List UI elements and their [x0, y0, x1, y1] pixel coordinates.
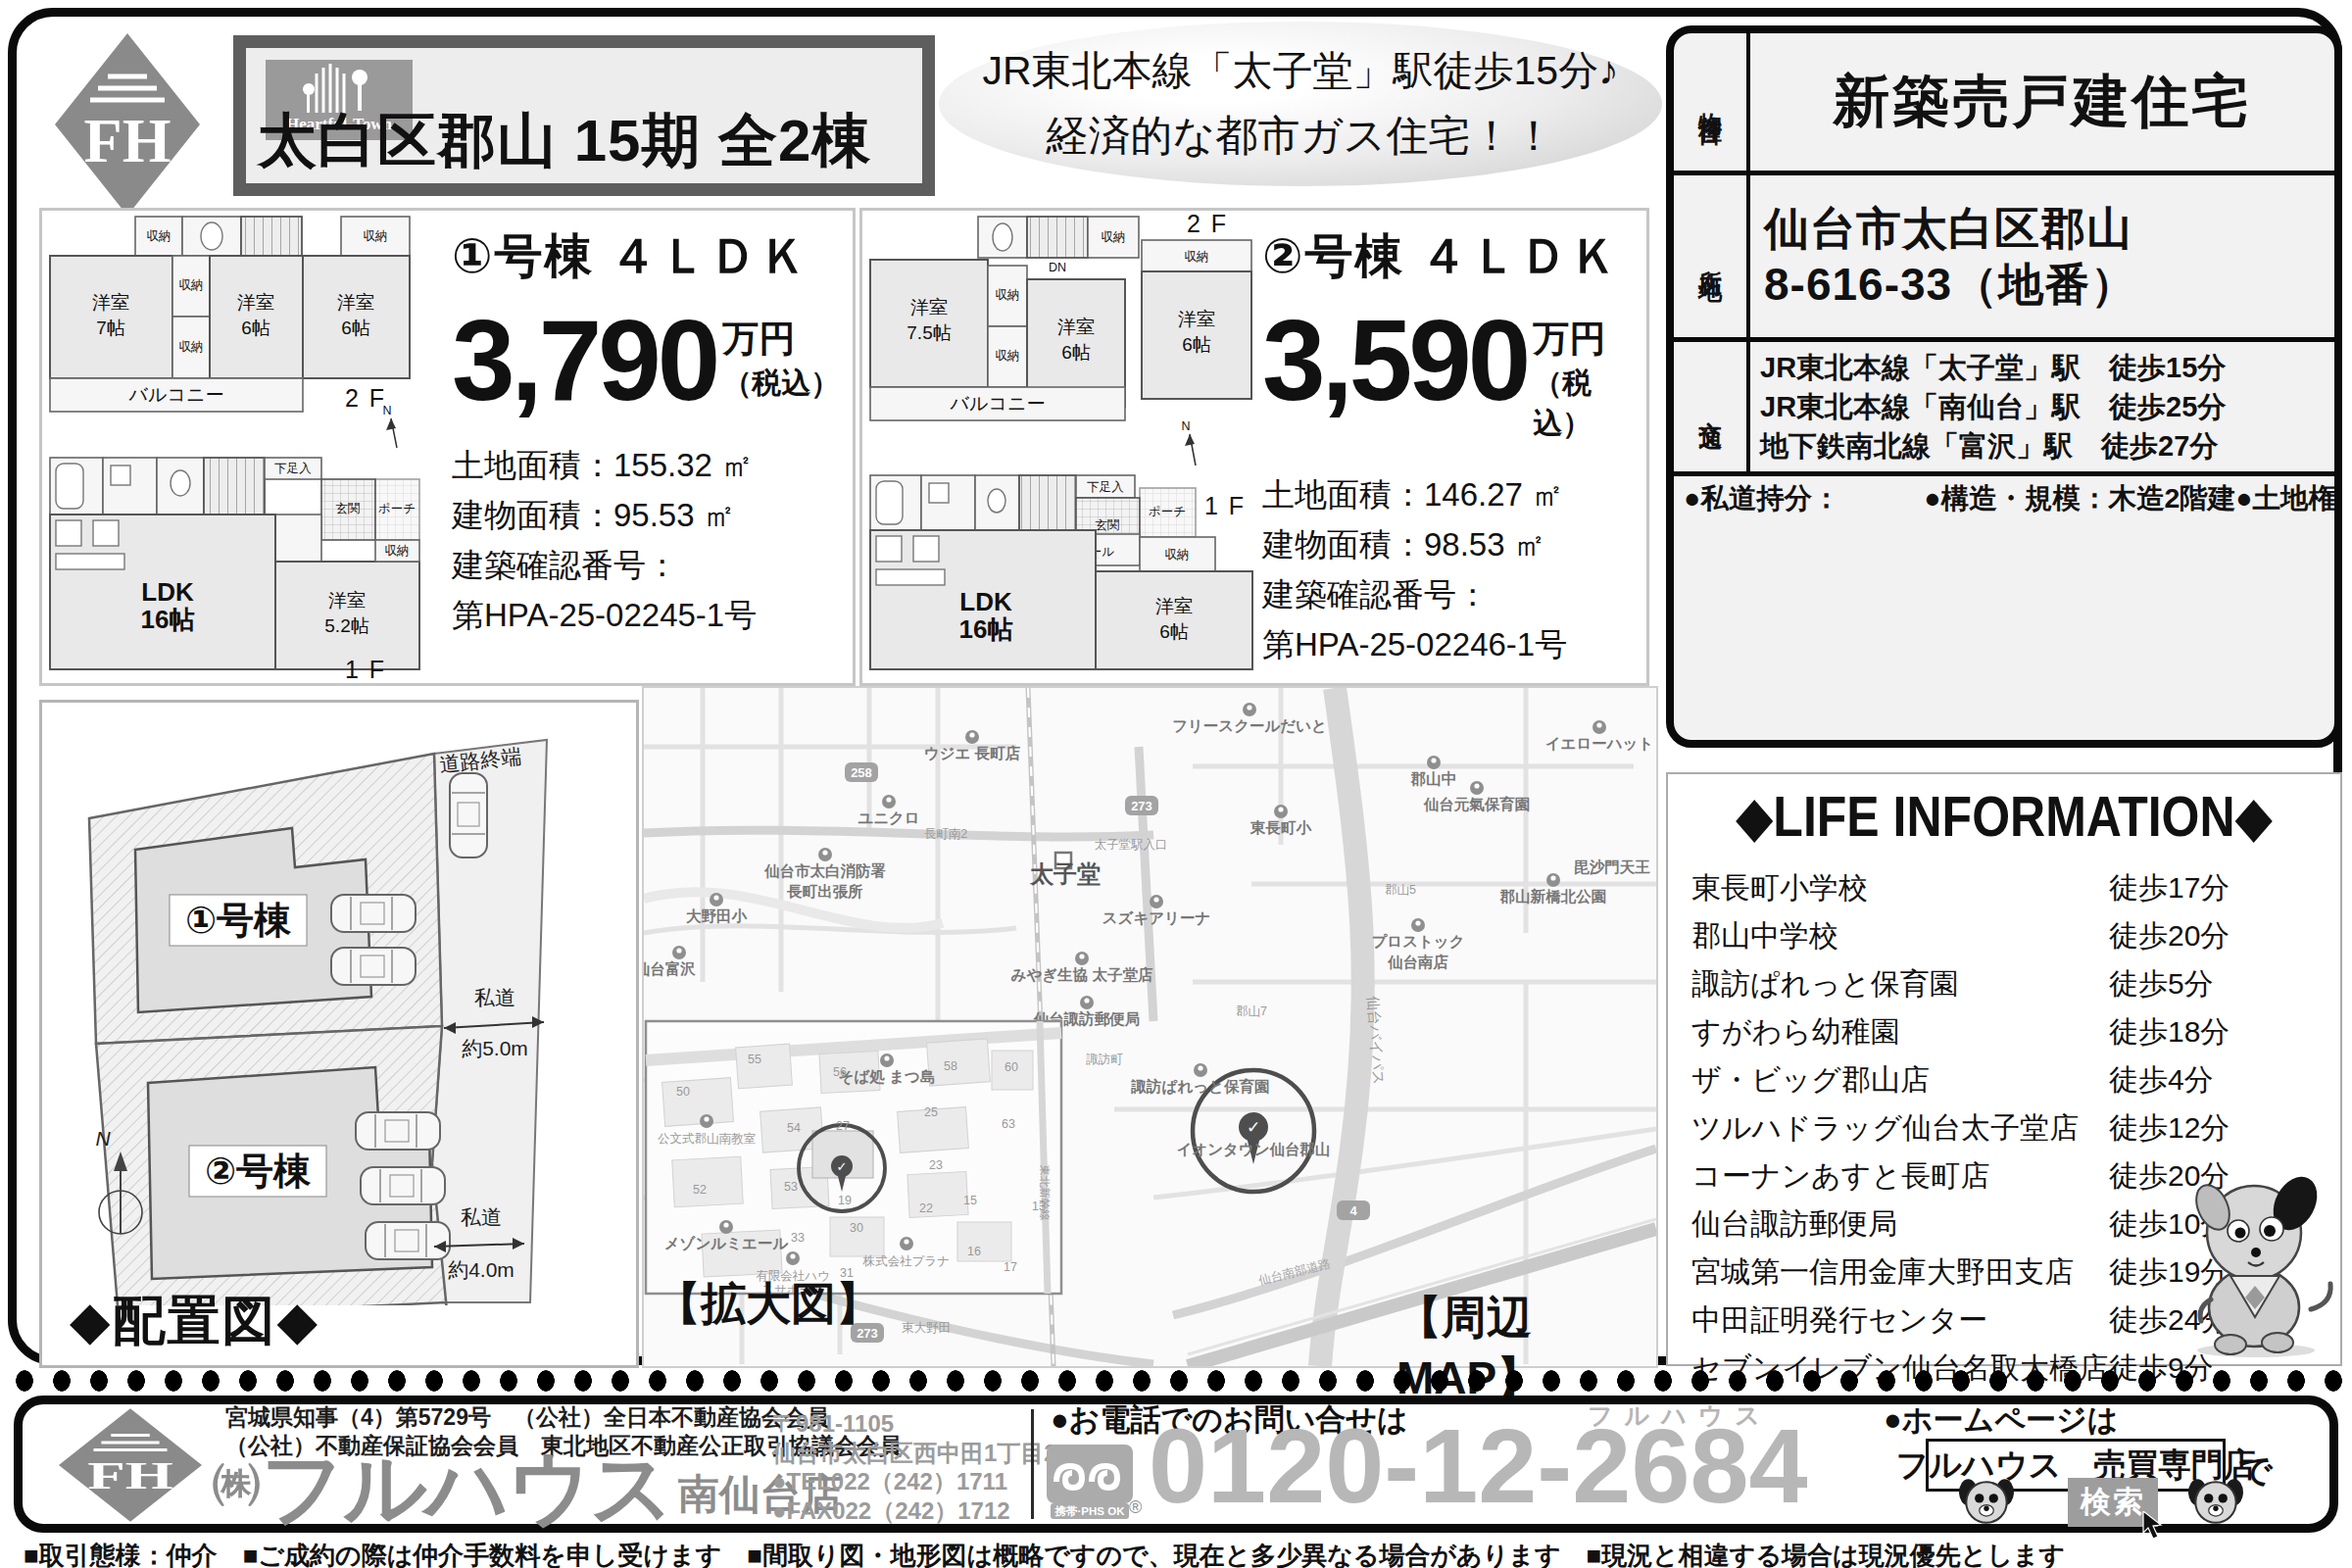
unit1-permit-label: 建築確認番号： [452, 540, 846, 590]
unit2-price-number: 3,590 [1262, 307, 1527, 415]
svg-text:1 F: 1 F [345, 656, 386, 681]
svg-text:収納: 収納 [179, 340, 204, 354]
check-icon: ✓ [837, 1159, 848, 1174]
lot-number: 22 [919, 1201, 933, 1215]
svg-text:収納: 収納 [364, 229, 388, 243]
lot-number: 17 [1004, 1260, 1017, 1274]
map-label: メゾンルミエール [664, 1235, 789, 1251]
map-label: みやぎ生協 太子堂店 [1011, 966, 1153, 984]
transport-lines: JR東北本線「太子堂」駅 徒歩15分JR東北本線「南仙台」駅 徒歩25分地下鉄南… [1750, 342, 2334, 471]
unit1-name: ①号棟 ４ＬＤＫ [452, 224, 846, 289]
life-walk-time: 徒歩5分 [2109, 964, 2214, 1004]
address-label: 所在地 [1674, 175, 1750, 337]
life-place: 宮城第一信用金庫大野田支店 [1691, 1252, 2109, 1293]
unit2-panel: DN 収納 洋室7.5帖 収納 収納 洋室6帖 収納 洋室6帖 バルコニー 2 … [859, 208, 1649, 686]
unit2-land-area: 土地面積：146.27 ㎡ [1262, 469, 1642, 519]
svg-text:バルコニー: バルコニー [950, 393, 1046, 414]
property-details-list: ●私道持分： ●構造・規模：木造2階建●土地権利：所有権 ●地目：宅地●都市計画… [1674, 476, 2334, 740]
life-place: 中田証明発行センター [1691, 1300, 2109, 1341]
unit1-price-unit: 万円 [722, 315, 840, 364]
map-label: 太子堂駅入口 [1095, 838, 1168, 852]
svg-text:私道: 私道 [461, 1205, 502, 1228]
dotted-divider [0, 1368, 2352, 1394]
svg-text:16帖: 16帖 [959, 614, 1013, 644]
area-map: ✓ 258273E482734 ウジエ 長町店ユニクロ長町南2仙台市太白消防署長… [642, 686, 1658, 1368]
catchcopy-line1: JR東北本線「太子堂」駅徒歩15分♪ [982, 44, 1618, 98]
site-plan-caption: ◆配置図◆ [70, 1286, 319, 1357]
svg-text:バルコニー: バルコニー [128, 384, 224, 405]
life-place: 東長町小学校 [1691, 868, 2109, 908]
unit2-price-unit: 万円 [1533, 315, 1642, 364]
svg-text:洋室: 洋室 [92, 292, 129, 313]
svg-text:収納: 収納 [179, 278, 204, 292]
fh-diamond-logo-icon: FH [53, 31, 202, 221]
transport-line: JR東北本線「太子堂」駅 徒歩15分 [1760, 348, 2334, 387]
life-row: 郡山中学校徒歩20分 [1691, 912, 2330, 960]
svg-text:洋室: 洋室 [328, 590, 366, 611]
svg-text:6帖: 6帖 [241, 318, 270, 338]
fh-diamond-logo-footer-icon: FH [57, 1407, 204, 1527]
lot-number: 23 [929, 1158, 943, 1172]
lot-number: 53 [784, 1180, 798, 1194]
svg-text:4: 4 [1349, 1203, 1357, 1218]
svg-text:収納: 収納 [385, 544, 410, 558]
svg-text:7.5帖: 7.5帖 [906, 322, 951, 343]
map-label: 太子堂 [1029, 860, 1101, 887]
map-label: 東北新幹線 [1039, 1164, 1051, 1221]
map-label: プロストック [1371, 933, 1464, 950]
lot-number: 52 [693, 1183, 707, 1197]
unit1-floorplan: 収納 DN 収納 洋室7帖 収納 収納 洋室6帖 洋室6帖 バルコニー 2 F … [42, 211, 434, 681]
svg-text:下足入: 下足入 [1087, 480, 1124, 494]
life-information-panel: ◆LIFE INFORMATION◆ 東長町小学校徒歩17分郡山中学校徒歩20分… [1666, 772, 2342, 1366]
svg-text:洋室: 洋室 [1155, 596, 1193, 616]
lot-number: 30 [850, 1221, 863, 1235]
map-label: 郡山7 [1236, 1004, 1267, 1018]
life-walk-time: 徒歩18分 [2109, 1012, 2229, 1053]
company-mark: ㈱ [212, 1454, 261, 1509]
life-row: 諏訪ぱれっと保育園徒歩5分 [1691, 960, 2330, 1008]
address-line2: 8-616-33（地番） [1764, 257, 2334, 313]
life-walk-time: 徒歩4分 [2109, 1060, 2214, 1101]
property-type-label: 物件種目 [1674, 33, 1750, 171]
lot-number: 60 [1004, 1060, 1018, 1074]
compass-icon: N [1181, 419, 1196, 465]
svg-text:273: 273 [1131, 799, 1152, 813]
property-detail-line: ●土地権利：所有権 ●地目：宅地 [2235, 484, 2342, 740]
registered-mark: ® [1129, 1497, 1142, 1518]
unit1-price-tax: （税込） [722, 364, 840, 404]
svg-text:N: N [95, 1127, 111, 1150]
lot-number: 58 [944, 1059, 957, 1073]
svg-text:ポーチ: ポーチ [1149, 505, 1186, 518]
svg-text:5.2帖: 5.2帖 [324, 615, 368, 636]
map-label: 郡山5 [1385, 883, 1416, 897]
life-row: ザ・ビッグ郡山店徒歩4分 [1691, 1056, 2330, 1104]
unit1-panel: 収納 DN 収納 洋室7帖 収納 収納 洋室6帖 洋室6帖 バルコニー 2 F … [39, 208, 856, 686]
map-label: 東長町小 [1249, 819, 1312, 836]
svg-text:2 F: 2 F [1187, 211, 1228, 237]
lot-number: 50 [676, 1085, 690, 1099]
svg-text:携帯·PHS OK: 携帯·PHS OK [1054, 1505, 1126, 1517]
life-place: コーナンあすと長町店 [1691, 1156, 2109, 1197]
svg-text:洋室: 洋室 [337, 292, 374, 313]
unit2-permit-no: 第HPA-25-02246-1号 [1262, 619, 1642, 669]
map-label: 仙台元氣保育園 [1423, 796, 1531, 812]
company-name: フルハウス [261, 1442, 672, 1534]
property-summary-panel: 物件種目 新築売戸建住宅 所在地 仙台市太白区郡山 8-616-33（地番） 交… [1666, 25, 2342, 748]
svg-text:下足入: 下足入 [274, 462, 312, 475]
svg-text:16帖: 16帖 [141, 605, 195, 634]
svg-text:②号棟: ②号棟 [205, 1151, 312, 1192]
enlarged-inset: ✓ 50555658605427256352532322151930333116… [646, 1021, 1061, 1297]
svg-text:収納: 収納 [996, 349, 1020, 363]
transport-label: 交通 [1674, 342, 1750, 471]
svg-text:洋室: 洋室 [1178, 309, 1215, 329]
svg-text:収納: 収納 [1165, 548, 1190, 562]
lot-number: 54 [787, 1121, 801, 1135]
svg-text:1 F: 1 F [1204, 492, 1246, 519]
unit2-floorplan: DN 収納 洋室7.5帖 収納 収納 洋室6帖 収納 洋室6帖 バルコニー 2 … [862, 211, 1256, 681]
homepage-label: ●ホームページは [1884, 1399, 2118, 1441]
life-place: すがわら幼稚園 [1691, 1012, 2109, 1053]
footer-divider [1031, 1409, 1034, 1519]
svg-text:6帖: 6帖 [1159, 621, 1189, 642]
map-label: 諏訪ぱれっと保育園 [1131, 1078, 1270, 1096]
lot-number: 19 [838, 1194, 852, 1207]
svg-text:LDK: LDK [959, 587, 1012, 616]
svg-text:収納: 収納 [147, 229, 171, 243]
lot-number: 55 [748, 1053, 761, 1066]
map-label: 仙台市太白消防署 [763, 862, 886, 879]
transport-line: JR東北本線「南仙台」駅 徒歩25分 [1760, 387, 2334, 426]
map-label: スズキアリーナ [1102, 909, 1211, 926]
lot-number: 16 [967, 1245, 981, 1258]
unit1-permit-no: 第HPA-25-02245-1号 [452, 590, 846, 640]
unit1-price-number: 3,790 [452, 307, 716, 415]
life-row: 東長町小学校徒歩17分 [1691, 864, 2330, 912]
map-label: 長町出張所 [786, 883, 863, 900]
life-place: ツルハドラッグ仙台太子堂店 [1691, 1108, 2109, 1149]
svg-text:洋室: 洋室 [237, 292, 274, 313]
life-row: ツルハドラッグ仙台太子堂店徒歩12分 [1691, 1104, 2330, 1152]
freedial-icon: 携帯·PHS OK [1047, 1445, 1133, 1525]
lot-number: 25 [924, 1105, 938, 1119]
svg-text:収納: 収納 [1185, 250, 1209, 264]
svg-text:洋室: 洋室 [910, 297, 948, 318]
map-label: イオンタウン仙台郡山 [1176, 1141, 1330, 1157]
svg-text:洋室: 洋室 [1057, 317, 1095, 337]
life-walk-time: 徒歩20分 [2109, 916, 2229, 956]
svg-text:収納: 収納 [996, 288, 1020, 302]
phone-number: 0120-12-2684 [1149, 1413, 1808, 1519]
property-detail-line: ●私道持分： ●構造・規模：木造2階建 [1684, 484, 2235, 740]
map-label: そば処 まつ島 [839, 1068, 936, 1086]
cursor-arrow-icon [2142, 1511, 2168, 1544]
svg-text:①号棟: ①号棟 [185, 900, 292, 941]
map-label: イエローハット [1545, 735, 1654, 752]
unit1-price: 3,790 万円 （税込） [452, 307, 846, 415]
enlarged-map-caption: 【拡大図】 [656, 1274, 881, 1335]
map-label: 毘沙門天王 [1574, 858, 1650, 875]
lot-number: 27 [836, 1119, 850, 1133]
life-information-title: ◆LIFE INFORMATION◆ [1668, 784, 2340, 850]
svg-text:約4.0m: 約4.0m [448, 1258, 514, 1281]
disclaimer-line: ■取引態様：仲介 ■ご成約の際は仲介手数料を申し受けます ■間取り図・地形図は概… [24, 1539, 2065, 1568]
lot-number: 15 [963, 1194, 977, 1207]
dog-mascot [2174, 1162, 2338, 1362]
unit2-price: 3,590 万円 （税込） [1262, 307, 1642, 444]
life-walk-time: 徒歩12分 [2109, 1108, 2229, 1149]
map-label: ウン仙台富沢 [644, 960, 696, 977]
catchcopy-bubble: JR東北本線「太子堂」駅徒歩15分♪ 経済的な都市ガス住宅！！ [939, 22, 1662, 186]
map-label: 東大野田 [902, 1321, 951, 1335]
dog-face-icon [2187, 1478, 2244, 1529]
life-place: 諏訪ぱれっと保育園 [1691, 964, 2109, 1004]
svg-text:258: 258 [851, 765, 872, 780]
property-type-value: 新築売戸建住宅 [1834, 64, 2252, 140]
svg-text:玄関: 玄関 [1096, 518, 1120, 532]
map-label: 大野田小 [686, 907, 748, 924]
map-label: 公文式郡山南教室 [658, 1132, 757, 1146]
map-label: 郡山新橋北公園 [1499, 888, 1607, 905]
svg-text:収納: 収納 [1102, 230, 1126, 244]
svg-text:6帖: 6帖 [341, 318, 370, 338]
dog-face-icon [1958, 1478, 2015, 1529]
map-label: 仙台南店 [1387, 954, 1449, 970]
map-label: フリースクールだいと [1172, 717, 1327, 734]
unit2-permit-label: 建築確認番号： [1262, 569, 1642, 619]
unit2-price-tax: （税込） [1533, 364, 1642, 444]
map-label: 郡山中 [1410, 770, 1457, 787]
map-label: ウジエ 長町店 [924, 745, 1021, 761]
svg-text:LDK: LDK [141, 577, 194, 607]
life-place: 郡山中学校 [1691, 916, 2109, 956]
svg-text:私道: 私道 [474, 986, 515, 1008]
map-label: ユニクロ [857, 809, 919, 826]
svg-text:DN: DN [1049, 261, 1066, 274]
map-label: 長町南2 [924, 827, 968, 841]
address-line1: 仙台市太白区郡山 [1764, 201, 2334, 257]
unit1-building-area: 建物面積：95.53 ㎡ [452, 490, 846, 540]
svg-text:N: N [382, 404, 391, 417]
page-title: 太白区郡山 15期 全2棟 [258, 102, 871, 181]
life-walk-time: 徒歩17分 [2109, 868, 2229, 908]
svg-text:FH: FH [87, 1453, 173, 1496]
svg-text:約5.0m: 約5.0m [462, 1037, 528, 1059]
lot-number: 33 [791, 1231, 805, 1245]
lot-number: 63 [1002, 1117, 1015, 1131]
life-place: ザ・ビッグ郡山店 [1691, 1060, 2109, 1101]
title-box: Heartful-Town 太白区郡山 15期 全2棟 [233, 35, 935, 196]
transport-line: 地下鉄南北線「富沢」駅 徒歩27分 [1760, 426, 2334, 465]
svg-text:N: N [1181, 419, 1190, 433]
unit2-name: ②号棟 ４ＬＤＫ [1262, 224, 1642, 289]
company-name-row: ㈱フルハウス南仙台店 [212, 1433, 843, 1544]
svg-text:6帖: 6帖 [1061, 342, 1091, 363]
svg-text:2 F: 2 F [345, 384, 386, 412]
map-label: 諏訪町 [1086, 1053, 1123, 1066]
compass-icon: N [382, 404, 397, 448]
map-label: 株式会社プラナ [862, 1254, 950, 1268]
svg-text:7帖: 7帖 [96, 318, 125, 338]
unit1-land-area: 土地面積：155.32 ㎡ [452, 440, 846, 490]
catchcopy-line2: 経済的な都市ガス住宅！！ [1046, 108, 1554, 165]
life-place: 仙台諏訪郵便局 [1691, 1204, 2109, 1245]
site-plan-panel: 道路終端 ①号棟 ②号棟 私道 約5.0m 私道 約4.0m N [39, 700, 639, 1368]
check-icon: ✓ [1247, 1118, 1260, 1137]
svg-text:FH: FH [84, 106, 171, 175]
unit2-building-area: 建物面積：98.53 ㎡ [1262, 519, 1642, 569]
site-plan-drawing: 道路終端 ①号棟 ②号棟 私道 約5.0m 私道 約4.0m N [42, 703, 636, 1305]
svg-text:玄関: 玄関 [336, 502, 361, 515]
life-row: すがわら幼稚園徒歩18分 [1691, 1008, 2330, 1056]
svg-text:6帖: 6帖 [1182, 334, 1211, 355]
svg-text:ポーチ: ポーチ [378, 502, 416, 515]
